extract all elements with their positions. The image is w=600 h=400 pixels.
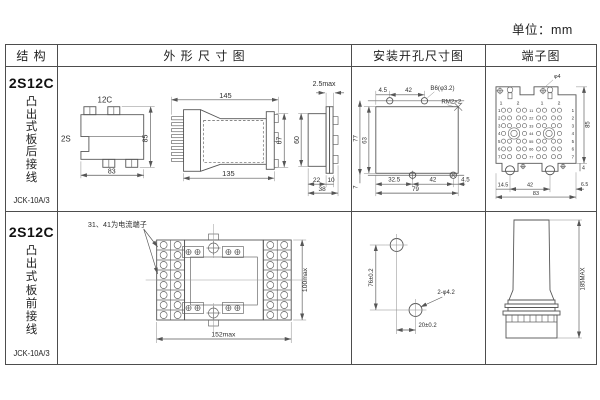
terminal-row-number-right: 1 [572,108,575,113]
dim-77: 77 [352,135,359,142]
terminal-screw-hole [160,282,167,289]
terminal-hole [536,131,540,135]
terminal-hole [557,131,561,135]
terminal-row-number-right: 6 [572,147,575,152]
dim-45-top: 4.5 [378,87,387,94]
relay-silhouette [503,220,560,338]
terminal-hole [557,139,561,143]
dim-total-145: 145 [219,91,231,100]
terminal-screw-hole [267,252,274,259]
terminal-hole [551,155,555,159]
current-terminal-note: 31、41为电流端子 [88,220,147,229]
front-view-drawing: 31、41为电流端子 [58,212,351,364]
terminal-hole [501,124,505,128]
mounting-type-text: 凸出式板后接线 [25,96,39,184]
terminal-hole [542,147,546,151]
dim-83-terminal: 83 [533,191,539,197]
terminal-screw-hole [267,262,274,269]
model-name: 2S12C [9,224,54,240]
terminal-screw-hole [160,312,167,319]
terminal-hole [551,116,555,120]
top-view: 12C 2S 85 83 [61,96,155,178]
dim-10: 10 [327,177,335,184]
terminal-hole [507,116,511,120]
terminal-screw-hole [174,282,181,289]
dim-45-bottom: 4.5 [461,177,470,184]
terminal-hole [522,124,526,128]
terminal-hole [516,108,520,112]
terminal-center-number: 44 [529,131,534,136]
terminal-screw-hole [281,252,288,259]
terminal-hole [522,131,526,135]
terminal-screw-hole [281,272,288,279]
dim-42-top: 42 [405,87,412,94]
terminal-screw-hole [174,242,181,249]
dim-38: 38 [318,186,326,193]
terminal-hole [522,139,526,143]
dim-63: 63 [361,136,368,143]
terminal-hole [542,108,546,112]
terminal-screw-hole [281,282,288,289]
terminal-hole [557,116,561,120]
terminal-big-hole-inner [546,130,552,136]
terminal-screw-hole [160,302,167,309]
mounting-dims: 4.5 42 B6(φ3.2) RM2×2 77 63 7 [352,85,470,196]
terminal-screw-hole [281,292,288,299]
dim-185max: 185MAX [581,267,587,290]
dim-325: 32.5 [388,177,401,184]
dim-4: 4 [582,165,585,171]
hole-spec-label: B6(φ3.2) [430,85,454,92]
terminal-big-hole [508,128,519,139]
terminal-screw-hole [174,302,181,309]
hole-label-2phi42: 2-φ4.2 [437,290,455,296]
terminal-row-number-left: 6 [498,147,501,152]
terminal-hole [516,155,520,159]
terminal-center-number: 33 [529,123,533,128]
terminal-hole [551,147,555,151]
terminal-hole [516,139,520,143]
terminal-row-number-left: 5 [498,139,501,144]
terminal-screw-hole [160,242,167,249]
product-code: JCK-10A/3 [13,348,49,358]
terminal-hole [501,155,505,159]
header-terminal: 端子图 [486,45,596,67]
terminal-screw-hole [267,312,274,319]
terminal-screw-hole [174,292,181,299]
dim-height-60: 60 [294,136,301,144]
terminal-screw-hole [267,302,274,309]
terminal-center-number: 22 [529,116,533,121]
terminal-screw-hole [160,252,167,259]
terminal-hole [522,108,526,112]
terminal-hole [507,139,511,143]
terminal-screw-hole [160,292,167,299]
terminal-hole [522,155,526,159]
terminal-row-number-right: 4 [572,131,575,136]
terminal-screw-hole [160,272,167,279]
terminal-hole [522,147,526,151]
top-view-code-label: 12C [98,96,113,105]
mounting-type-text: 凸出式板前接线 [25,245,39,337]
spec-table: 结 构 外 形 尺 寸 图 安装开孔尺寸图 端子图 2S12C 凸出式板后接线 … [5,44,597,365]
header-structure: 结 构 [6,45,58,67]
mounting-cell-row2: 76±0.2 20±0.2 2-φ4.2 [352,212,486,364]
dim-85-terminal: 85 [585,121,591,128]
terminal-screw-hole [281,242,288,249]
terminal-hole [536,147,540,151]
mounting-drawing-row1: 4.5 42 B6(φ3.2) RM2×2 77 63 7 [352,67,485,211]
terminal-hole [536,116,540,120]
dim-22: 22 [313,177,321,184]
dim-42-terminal: 42 [527,183,533,189]
terminal-screw-hole [174,262,181,269]
terminal-hole [501,147,505,151]
terminal-hole [551,124,555,128]
terminal-hole [516,116,520,120]
post-label-1: 1 [500,101,503,107]
terminal-screw-hole [267,292,274,299]
dim-65: 6.5 [581,182,588,188]
terminal-screw-hole [174,252,181,259]
dim-20: 20±0.2 [419,323,438,329]
terminal-screw-hole [174,312,181,319]
terminal-hole [542,155,546,159]
terminal-hole [501,131,505,135]
terminal-hole [501,139,505,143]
terminal-hole [536,108,540,112]
terminal-hole [536,124,540,128]
terminal-row-number-left: 2 [498,116,501,121]
header-mounting: 安装开孔尺寸图 [352,45,486,67]
terminal-row-number-right: 7 [572,154,575,159]
terminal-hole [501,108,505,112]
mounting-cell-row1: 4.5 42 B6(φ3.2) RM2×2 77 63 7 [352,67,486,212]
terminal-center-number: 66 [529,147,533,152]
dim-width-83: 83 [108,168,116,175]
terminal-screw-hole [267,242,274,249]
top-view-side-label: 2S [61,134,71,143]
product-code: JCK-10A/3 [13,195,49,205]
terminal-row-number-left: 3 [498,123,501,128]
screw-spec-label: RM2×2 [441,99,462,106]
terminal-hole [507,124,511,128]
post-label-3: 1 [541,101,544,107]
terminal-center-number: 11 [529,108,533,113]
dim-body-135: 135 [222,169,234,178]
terminal-hole [542,124,546,128]
terminal-row-number-left: 7 [498,154,501,159]
terminal-hole [501,116,505,120]
terminal-hole [551,108,555,112]
terminal-hole [542,116,546,120]
terminal-hole [522,116,526,120]
terminal-screw-hole [281,262,288,269]
terminal-row-number-right: 2 [572,116,575,121]
dim-height-85: 85 [143,135,150,143]
dim-100max: 100max [302,267,309,292]
outline-cell-row1: 12C 2S 85 83 [58,67,352,212]
structure-cell-row2: 2S12C 凸出式板前接线 JCK-10A/3 [6,212,58,364]
terminal-hole [557,147,561,151]
unit-label: 单位：mm [512,19,573,38]
dim-height-67: 67 [277,136,284,144]
terminal-screw-hole [281,302,288,309]
terminal-hole [536,155,540,159]
side-view: 145 135 67 [172,91,289,181]
dim-152max: 152max [211,331,236,338]
terminal-cell-row2: 185MAX [486,212,596,364]
terminal-hole [507,108,511,112]
terminal-hole [516,147,520,151]
terminal-hole [516,124,520,128]
terminal-hole [557,108,561,112]
structure-cell-row1: 2S12C 凸出式板后接线 JCK-10A/3 [6,67,58,212]
terminal-row-number-right: 5 [572,139,575,144]
post-label-4: 2 [558,101,561,107]
terminal-screw-hole [281,312,288,319]
terminal-big-hole [543,128,554,139]
terminal-big-hole-inner [511,130,517,136]
terminal-hole [557,155,561,159]
dim-7: 7 [352,185,359,189]
terminal-hole [507,147,511,151]
terminal-center-number: 77 [529,154,533,159]
dim-79: 79 [412,186,419,193]
end-view: 2.5max 60 22 10 38 [294,81,344,196]
terminal-hole [536,139,540,143]
outline-cell-row2: 31、41为电流端子 [58,212,352,364]
terminal-center-number: 55 [529,139,533,144]
header-outline: 外 形 尺 寸 图 [58,45,352,67]
terminal-hole [551,139,555,143]
dim-76: 76±0.2 [369,268,375,287]
terminal-drawing-row1: φ4 1 2 1 2 1111222233334444555566667777 … [486,67,596,211]
front-dims: 100max 152max [157,240,309,343]
post-label-2: 2 [517,101,520,107]
terminal-screw-hole [267,282,274,289]
dim-flange-25max: 2.5max [313,81,336,88]
terminal-row-number-left: 1 [498,108,501,113]
terminal-hole [557,124,561,128]
terminal-screw-hole [174,272,181,279]
terminal-cell-row1: φ4 1 2 1 2 1111222233334444555566667777 … [486,67,596,212]
terminal-row-number-right: 3 [572,123,575,128]
dim-42-bottom: 42 [429,177,436,184]
silhouette-dims: 185MAX [549,220,587,338]
mounting-dims-row2: 76±0.2 20±0.2 2-φ4.2 [369,245,456,330]
terminal-row-number-left: 4 [498,131,501,136]
mounting-drawing-row2: 76±0.2 20±0.2 2-φ4.2 [352,212,485,364]
terminal-grid: 1111222233334444555566667777 [498,108,575,160]
outline-drawing-row1: 12C 2S 85 83 [58,67,351,211]
mounting-holes [370,234,427,334]
mounting-cutout [368,98,464,180]
terminal-panel: φ4 1 2 1 2 1111222233334444555566667777 [496,74,576,175]
terminal-screw-hole [160,262,167,269]
terminal-hole [542,139,546,143]
model-name: 2S12C [9,75,54,91]
terminal-hole [507,155,511,159]
phi4-hole-label: φ4 [554,74,561,80]
side-silhouette-drawing: 185MAX [486,212,596,364]
terminal-screw-hole [267,272,274,279]
dim-145-terminal: 14.5 [498,183,509,189]
